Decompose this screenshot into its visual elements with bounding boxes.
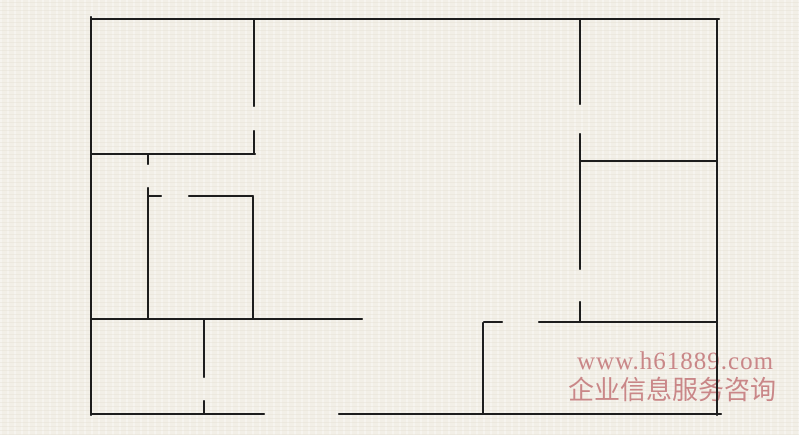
wall-v204-lower xyxy=(203,400,205,415)
wall-v254-upper xyxy=(253,19,255,107)
watermark: www.h61889.com 企业信息服务咨询 xyxy=(568,349,776,404)
watermark-url-text: www.h61889.com xyxy=(577,349,776,374)
wall-v254-lower xyxy=(253,130,255,155)
outer-wall-bottom-right xyxy=(338,413,722,415)
wall-v204-upper xyxy=(203,319,205,378)
wall-v483 xyxy=(482,322,484,415)
wall-v580-lower xyxy=(579,301,581,323)
wall-h161 xyxy=(580,160,717,162)
wall-h154 xyxy=(91,153,256,155)
wall-v580-middle xyxy=(579,133,581,270)
wall-v580-upper xyxy=(579,19,581,105)
outer-wall-top xyxy=(91,18,720,20)
wall-v148 xyxy=(147,187,149,320)
wall-h196 xyxy=(188,195,254,197)
wall-v148-stub xyxy=(147,154,149,165)
wall-h319 xyxy=(91,318,363,320)
watermark-caption-text: 企业信息服务咨询 xyxy=(568,378,776,404)
wall-h196-stub xyxy=(148,195,162,197)
wall-h322-stub xyxy=(483,321,503,323)
outer-wall-right xyxy=(716,19,718,416)
wall-h322 xyxy=(538,321,717,323)
outer-wall-bottom-left xyxy=(91,413,265,415)
wall-v253 xyxy=(252,196,254,320)
floor-plan-canvas: www.h61889.com 企业信息服务咨询 xyxy=(0,0,799,435)
outer-wall-left xyxy=(90,16,92,416)
